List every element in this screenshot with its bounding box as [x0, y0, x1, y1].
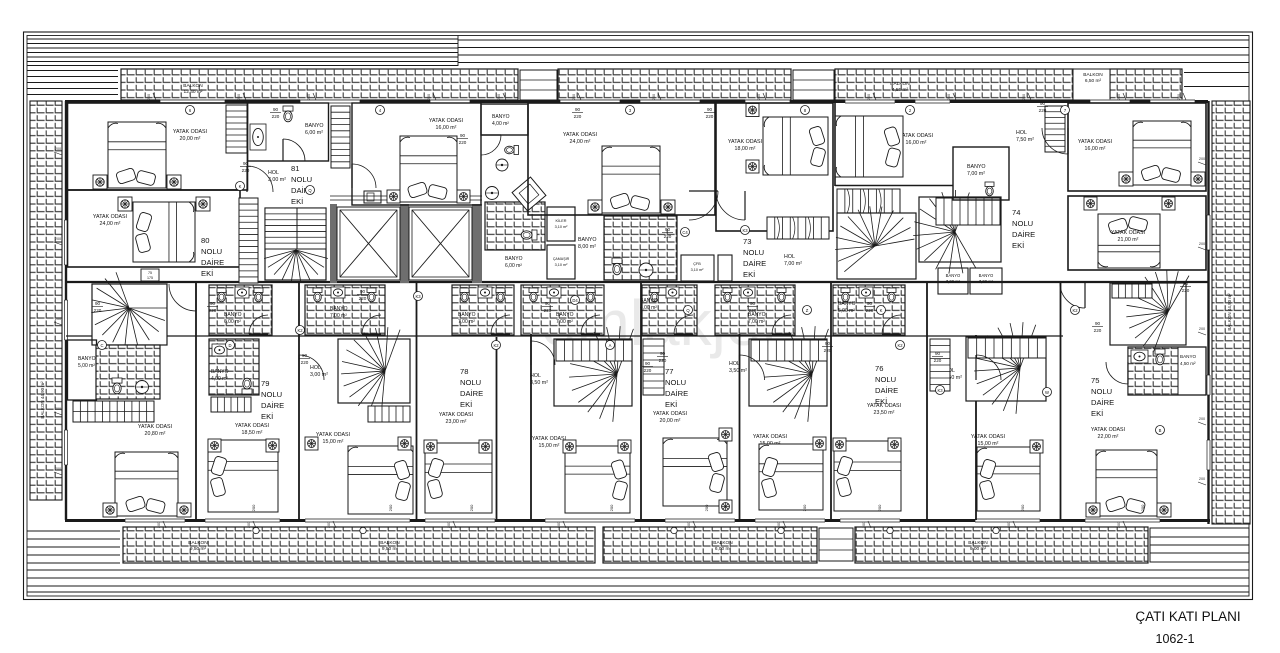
svg-text:BALKON: BALKON	[968, 540, 988, 546]
svg-text:18,50 m²: 18,50 m²	[242, 430, 263, 436]
svg-text:BANYO: BANYO	[492, 114, 510, 120]
svg-text:200: 200	[1199, 417, 1205, 421]
svg-text:BANYO: BANYO	[505, 256, 523, 262]
svg-text:220: 220	[934, 358, 942, 363]
svg-text:175: 175	[147, 276, 153, 280]
svg-text:81: 81	[291, 164, 299, 173]
svg-text:90: 90	[707, 107, 713, 112]
svg-text:22,00 m²: 22,00 m²	[1098, 434, 1119, 440]
svg-text:200: 200	[427, 94, 431, 100]
svg-text:YATAK ODASI: YATAK ODASI	[316, 432, 350, 438]
svg-text:4,50 m²: 4,50 m²	[1180, 361, 1196, 366]
svg-text:EKİ: EKİ	[743, 270, 755, 279]
svg-text:YATAK ODASI: YATAK ODASI	[429, 118, 463, 124]
svg-text:NOLU: NOLU	[1012, 219, 1033, 228]
svg-text:BALKON: BALKON	[183, 83, 203, 89]
svg-text:90: 90	[1183, 281, 1189, 286]
svg-text:90: 90	[575, 107, 581, 112]
svg-text:7,00 m²: 7,00 m²	[330, 313, 347, 319]
svg-text:BALKON: BALKON	[890, 81, 910, 87]
svg-text:DAİRE: DAİRE	[875, 386, 898, 395]
svg-text:3,10 m²: 3,10 m²	[555, 263, 569, 267]
svg-text:16,00 m²: 16,00 m²	[436, 125, 457, 131]
svg-text:15,00 m²: 15,00 m²	[539, 443, 560, 449]
svg-text:1062-1: 1062-1	[1156, 632, 1195, 646]
svg-text:DAİRE: DAİRE	[743, 259, 766, 268]
svg-text:YATAK ODASI: YATAK ODASI	[138, 424, 172, 430]
svg-text:200: 200	[55, 317, 61, 321]
svg-text:200: 200	[247, 522, 251, 528]
svg-text:EKİ: EKİ	[460, 400, 472, 409]
svg-text:3,10 m²: 3,10 m²	[691, 268, 705, 272]
svg-text:200: 200	[237, 94, 241, 100]
svg-text:6,00 m²: 6,00 m²	[715, 546, 732, 552]
svg-text:BALKON 44,90 m²: BALKON 44,90 m²	[40, 381, 45, 419]
svg-text:DAİRE: DAİRE	[460, 389, 483, 398]
svg-text:6,00 m²: 6,00 m²	[224, 319, 241, 325]
svg-text:HOL: HOL	[268, 170, 279, 176]
svg-text:220: 220	[209, 308, 217, 313]
svg-text:200: 200	[572, 94, 576, 100]
svg-text:220: 220	[94, 308, 102, 313]
svg-text:90: 90	[750, 301, 756, 306]
svg-text:4,00 m²: 4,00 m²	[640, 305, 657, 311]
svg-text:200: 200	[687, 522, 691, 528]
svg-text:YATAK ODASI: YATAK ODASI	[1078, 139, 1112, 145]
svg-text:D: D	[228, 343, 231, 348]
svg-text:K: K	[239, 184, 242, 189]
svg-text:BANYO: BANYO	[305, 123, 324, 129]
svg-text:DAİRE: DAİRE	[1012, 230, 1035, 239]
svg-text:6,00 m²: 6,00 m²	[505, 263, 522, 269]
svg-text:200: 200	[947, 94, 951, 100]
svg-text:200: 200	[147, 94, 151, 100]
svg-text:YATAK ODASI: YATAK ODASI	[1091, 427, 1125, 433]
svg-text:D4: D4	[572, 298, 578, 303]
svg-text:73: 73	[743, 237, 751, 246]
svg-text:200: 200	[307, 94, 311, 100]
svg-text:Z: Z	[806, 308, 809, 313]
svg-text:76: 76	[875, 364, 883, 373]
svg-text:YATAK ODASI: YATAK ODASI	[653, 411, 687, 417]
svg-text:NOLU: NOLU	[291, 175, 312, 184]
svg-text:7,00 m²: 7,00 m²	[967, 171, 985, 177]
svg-text:220: 220	[544, 308, 552, 313]
svg-text:220: 220	[1182, 288, 1190, 293]
svg-text:220: 220	[459, 140, 467, 145]
svg-text:K2: K2	[493, 343, 499, 348]
svg-text:7,00 m²: 7,00 m²	[979, 279, 994, 284]
svg-text:HOL: HOL	[729, 361, 740, 367]
svg-text:18,00 m²: 18,00 m²	[735, 146, 756, 152]
svg-text:NOLU: NOLU	[261, 390, 282, 399]
svg-text:200: 200	[447, 522, 451, 528]
svg-text:5,00 m²: 5,00 m²	[838, 308, 855, 314]
svg-text:90: 90	[302, 353, 308, 358]
svg-text:BANYO: BANYO	[224, 312, 242, 318]
svg-text:74: 74	[1012, 208, 1020, 217]
svg-text:NOLU: NOLU	[201, 247, 222, 256]
svg-text:YATAK ODASI: YATAK ODASI	[563, 132, 597, 138]
svg-text:220: 220	[242, 168, 250, 173]
svg-text:BANYO: BANYO	[78, 356, 96, 362]
svg-text:90: 90	[645, 361, 651, 366]
svg-text:BALKON 44,90 m²: BALKON 44,90 m²	[1227, 293, 1232, 331]
svg-text:EKİ: EKİ	[291, 197, 303, 206]
svg-text:ÇAMAŞIR: ÇAMAŞIR	[553, 257, 570, 261]
svg-text:200: 200	[1020, 504, 1025, 511]
svg-text:200: 200	[1199, 157, 1205, 161]
svg-text:220: 220	[659, 358, 667, 363]
svg-text:90: 90	[210, 301, 216, 306]
svg-text:200: 200	[704, 504, 709, 511]
svg-text:BANYO: BANYO	[979, 273, 994, 278]
svg-text:BANYO: BANYO	[1180, 354, 1197, 359]
svg-text:EKİ: EKİ	[261, 412, 273, 421]
svg-text:220: 220	[272, 114, 280, 119]
svg-text:7,00 m²: 7,00 m²	[784, 261, 802, 267]
svg-text:7,00 m²: 7,00 m²	[748, 319, 765, 325]
svg-text:K3: K3	[415, 294, 421, 299]
svg-text:6,00 m²: 6,00 m²	[305, 130, 323, 136]
svg-text:200: 200	[157, 522, 161, 528]
svg-text:200: 200	[469, 504, 474, 511]
svg-text:BANYO: BANYO	[578, 237, 597, 243]
svg-text:220: 220	[1039, 108, 1047, 113]
svg-text:75: 75	[1091, 376, 1099, 385]
svg-text:NOLU: NOLU	[875, 375, 896, 384]
svg-text:90: 90	[243, 161, 249, 166]
svg-text:90: 90	[935, 351, 941, 356]
svg-text:NOLU: NOLU	[665, 378, 686, 387]
svg-text:12,40 m²: 12,40 m²	[184, 89, 203, 95]
svg-text:90: 90	[660, 351, 666, 356]
svg-text:B: B	[1159, 428, 1162, 433]
svg-text:200: 200	[55, 467, 61, 471]
svg-text:NOLU: NOLU	[743, 248, 764, 257]
svg-text:200: 200	[497, 94, 501, 100]
svg-text:220: 220	[574, 114, 582, 119]
svg-text:NOLU: NOLU	[1091, 387, 1112, 396]
svg-text:79: 79	[261, 379, 269, 388]
svg-text:90: 90	[460, 133, 466, 138]
svg-text:200: 200	[1199, 242, 1205, 246]
svg-text:90: 90	[867, 301, 873, 306]
svg-text:DAİRE: DAİRE	[201, 258, 224, 267]
svg-text:220: 220	[706, 114, 714, 119]
svg-text:K2: K2	[297, 328, 303, 333]
svg-text:BANYO: BANYO	[556, 312, 574, 318]
svg-text:77: 77	[665, 367, 673, 376]
svg-text:78: 78	[460, 367, 468, 376]
svg-text:HOL: HOL	[784, 254, 795, 260]
svg-text:YATAK ODASI: YATAK ODASI	[235, 423, 269, 429]
svg-text:200: 200	[1117, 94, 1121, 100]
svg-text:ÇATI KATI PLANI: ÇATI KATI PLANI	[1135, 609, 1240, 624]
svg-text:K3: K3	[742, 228, 748, 233]
svg-text:200: 200	[877, 504, 882, 511]
svg-text:YATAK ODASI: YATAK ODASI	[867, 403, 901, 409]
svg-text:7,50 m²: 7,50 m²	[1016, 137, 1034, 143]
svg-text:200: 200	[557, 522, 561, 528]
svg-text:YATAK ODASI: YATAK ODASI	[173, 129, 207, 135]
svg-text:ÇFB: ÇFB	[693, 262, 701, 266]
svg-text:6,50 m²: 6,50 m²	[1085, 78, 1102, 84]
svg-text:90: 90	[273, 107, 279, 112]
svg-text:A: A	[609, 343, 612, 348]
svg-text:DAİRE: DAİRE	[261, 401, 284, 410]
svg-text:9,00 m²: 9,00 m²	[970, 546, 987, 552]
svg-text:24,00 m²: 24,00 m²	[570, 139, 591, 145]
svg-text:K2: K2	[1072, 308, 1078, 313]
svg-text:4,00 m²: 4,00 m²	[211, 376, 228, 382]
svg-text:200: 200	[1140, 504, 1145, 511]
svg-text:15,00 m²: 15,00 m²	[978, 441, 999, 447]
svg-text:200: 200	[1199, 477, 1205, 481]
svg-text:21,00 m²: 21,00 m²	[1118, 237, 1139, 243]
svg-text:23,50 m²: 23,50 m²	[874, 410, 895, 416]
svg-text:3,00 m²: 3,00 m²	[310, 372, 328, 378]
svg-text:200: 200	[55, 147, 61, 151]
svg-text:4,00 m²: 4,00 m²	[492, 121, 509, 127]
svg-text:3,50 m²: 3,50 m²	[530, 380, 548, 386]
svg-text:YATAK ODASI: YATAK ODASI	[728, 139, 762, 145]
svg-text:BANYO: BANYO	[838, 301, 856, 307]
svg-text:BALKON: BALKON	[713, 540, 733, 546]
svg-text:200: 200	[867, 94, 871, 100]
svg-text:BANYO: BANYO	[640, 298, 658, 304]
svg-text:8,00 m²: 8,00 m²	[578, 244, 596, 250]
svg-text:K3: K3	[937, 388, 943, 393]
svg-text:7,00 m²: 7,00 m²	[556, 319, 573, 325]
svg-text:EKİ: EKİ	[1012, 241, 1024, 250]
svg-text:200: 200	[1007, 522, 1011, 528]
svg-text:90: 90	[665, 227, 671, 232]
svg-text:200: 200	[802, 504, 807, 511]
svg-text:K2: K2	[897, 343, 903, 348]
svg-text:90: 90	[1095, 321, 1101, 326]
svg-text:200: 200	[55, 237, 61, 241]
svg-text:NOLU: NOLU	[460, 378, 481, 387]
svg-text:200: 200	[757, 94, 761, 100]
svg-text:DAİRE: DAİRE	[1091, 398, 1114, 407]
svg-text:23,00 m²: 23,00 m²	[446, 419, 467, 425]
svg-text:C4: C4	[682, 230, 688, 235]
svg-text:220: 220	[824, 348, 832, 353]
svg-text:YATAK ODASI: YATAK ODASI	[1111, 230, 1145, 236]
svg-text:EKİ: EKİ	[1091, 409, 1103, 418]
svg-text:BANYO: BANYO	[330, 306, 348, 312]
svg-text:YATAK ODASI: YATAK ODASI	[532, 436, 566, 442]
svg-text:200: 200	[1199, 327, 1205, 331]
svg-text:220: 220	[866, 308, 874, 313]
svg-text:9,50 m²: 9,50 m²	[382, 546, 399, 552]
svg-text:C: C	[100, 343, 103, 348]
svg-text:BALKON: BALKON	[188, 540, 208, 546]
svg-text:4,55 m²: 4,55 m²	[892, 87, 909, 93]
svg-text:KİLER: KİLER	[556, 218, 567, 223]
svg-text:20,80 m²: 20,80 m²	[145, 431, 166, 437]
svg-text:15,00 m²: 15,00 m²	[323, 439, 344, 445]
svg-text:K: K	[880, 308, 883, 313]
svg-text:200: 200	[55, 407, 61, 411]
svg-text:90: 90	[360, 289, 366, 294]
svg-text:200: 200	[388, 504, 393, 511]
svg-text:200: 200	[327, 522, 331, 528]
svg-text:220: 220	[644, 368, 652, 373]
svg-text:200: 200	[1117, 522, 1121, 528]
svg-text:EKİ: EKİ	[665, 400, 677, 409]
svg-text:75: 75	[148, 271, 152, 275]
svg-text:YATAK ODASI: YATAK ODASI	[971, 434, 1005, 440]
svg-text:BALKON: BALKON	[380, 540, 400, 546]
svg-text:200: 200	[862, 522, 866, 528]
svg-text:BANYO: BANYO	[211, 369, 229, 375]
svg-text:HOL: HOL	[1016, 130, 1027, 136]
svg-text:200: 200	[251, 504, 256, 511]
svg-text:DAİRE: DAİRE	[665, 389, 688, 398]
svg-text:EKİ: EKİ	[201, 269, 213, 278]
svg-text:BANYO: BANYO	[946, 273, 961, 278]
svg-text:20,00 m²: 20,00 m²	[180, 136, 201, 142]
svg-text:220: 220	[301, 360, 309, 365]
svg-text:BANYO: BANYO	[458, 312, 476, 318]
svg-text:20,00 m²: 20,00 m²	[660, 418, 681, 424]
svg-text:200: 200	[1177, 94, 1181, 100]
svg-text:HOL: HOL	[530, 373, 541, 379]
svg-text:24,00 m²: 24,00 m²	[100, 221, 121, 227]
svg-text:200: 200	[777, 522, 781, 528]
svg-text:5,00 m²: 5,00 m²	[78, 363, 95, 369]
svg-text:200: 200	[1022, 94, 1026, 100]
svg-text:200: 200	[609, 504, 614, 511]
svg-text:200: 200	[652, 94, 656, 100]
svg-text:3,50 m²: 3,50 m²	[729, 368, 747, 374]
svg-text:BALKON: BALKON	[1083, 72, 1103, 78]
svg-text:YATAK ODASI: YATAK ODASI	[439, 412, 473, 418]
svg-text:YATAK ODASI: YATAK ODASI	[753, 434, 787, 440]
svg-text:90: 90	[1040, 101, 1046, 106]
svg-text:YATAK ODASI: YATAK ODASI	[899, 133, 933, 139]
svg-text:220: 220	[664, 234, 672, 239]
svg-text:90: 90	[825, 341, 831, 346]
svg-text:9,50 m²: 9,50 m²	[190, 546, 207, 552]
svg-text:7,00 m²: 7,00 m²	[946, 279, 961, 284]
svg-text:3,10 m²: 3,10 m²	[555, 225, 569, 229]
svg-text:BANYO: BANYO	[967, 164, 986, 170]
svg-text:W: W	[1045, 390, 1049, 395]
svg-text:16,00 m²: 16,00 m²	[906, 140, 927, 146]
svg-text:YATAK ODASI: YATAK ODASI	[93, 214, 127, 220]
svg-text:90: 90	[95, 301, 101, 306]
svg-text:7,00 m²: 7,00 m²	[458, 319, 475, 325]
svg-text:220: 220	[359, 296, 367, 301]
svg-text:80: 80	[201, 236, 209, 245]
svg-text:220: 220	[1094, 328, 1102, 333]
svg-text:220: 220	[749, 308, 757, 313]
svg-text:90: 90	[545, 301, 551, 306]
svg-text:16,00 m²: 16,00 m²	[1085, 146, 1106, 152]
